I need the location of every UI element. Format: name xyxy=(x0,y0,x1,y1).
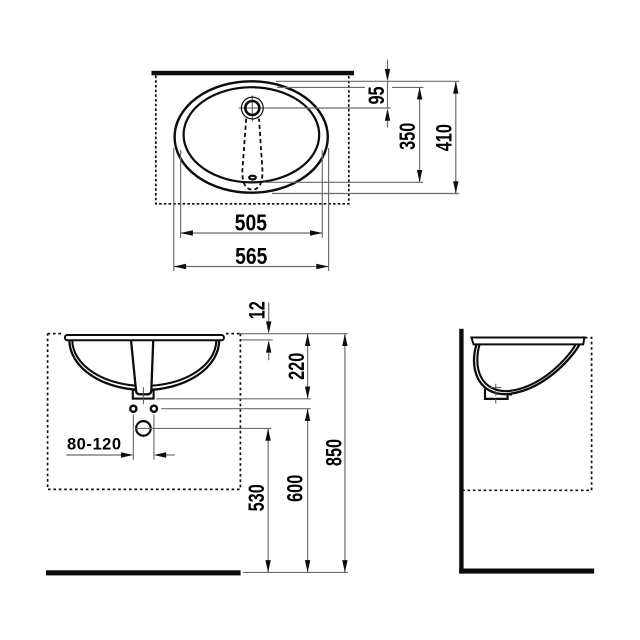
svg-text:12: 12 xyxy=(245,301,270,319)
svg-text:350: 350 xyxy=(396,123,421,150)
svg-text:410: 410 xyxy=(432,124,457,151)
svg-text:600: 600 xyxy=(283,475,308,502)
svg-text:80-120: 80-120 xyxy=(67,436,122,454)
svg-text:95: 95 xyxy=(365,86,390,104)
svg-text:850: 850 xyxy=(322,439,347,466)
svg-text:505: 505 xyxy=(235,211,267,236)
svg-text:530: 530 xyxy=(245,484,270,511)
svg-text:565: 565 xyxy=(235,245,267,270)
svg-text:220: 220 xyxy=(284,353,309,380)
